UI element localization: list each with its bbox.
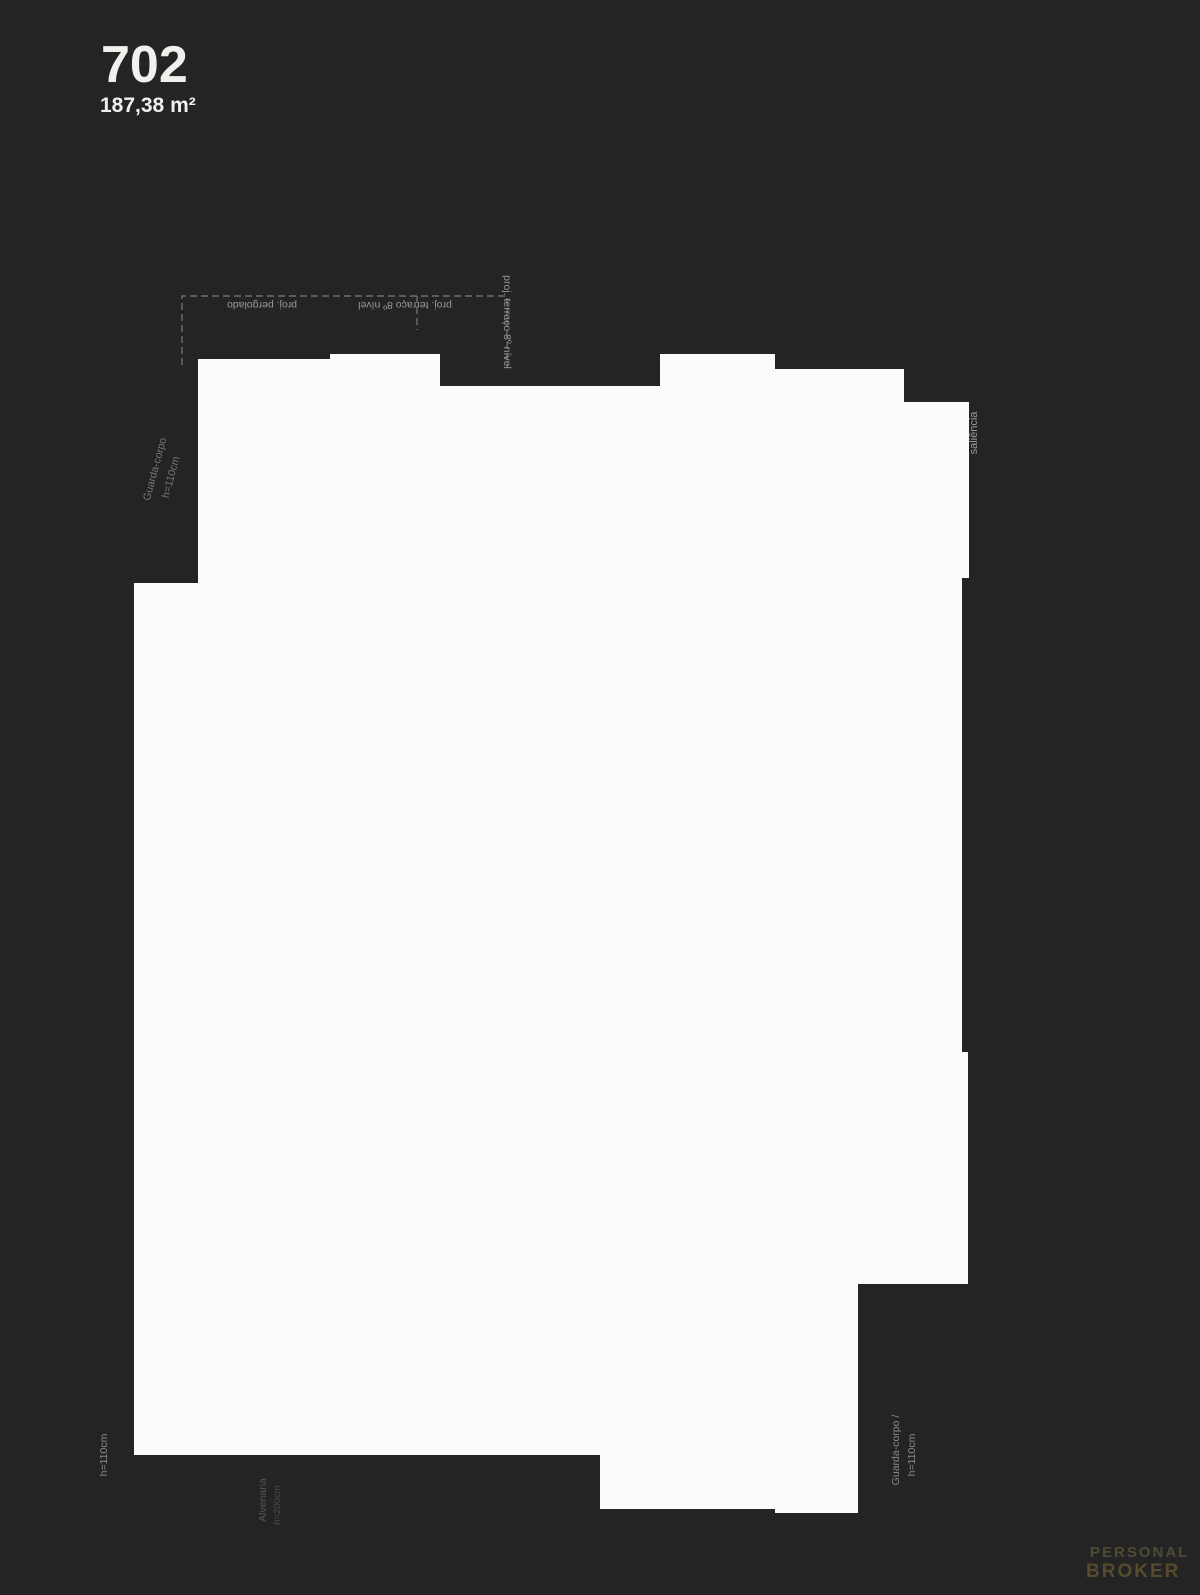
- svg-text:PERSONAL: PERSONAL: [1090, 1544, 1189, 1561]
- svg-text:Alvenaria: Alvenaria: [257, 1478, 269, 1522]
- svg-text:h=200cm: h=200cm: [272, 1485, 283, 1524]
- svg-text:187,38 m²: 187,38 m²: [100, 94, 196, 117]
- svg-text:Guarda-corpo /: Guarda-corpo /: [890, 1415, 902, 1486]
- svg-text:proj. terraço 8º nível: proj. terraço 8º nível: [358, 299, 452, 311]
- svg-text:BROKER: BROKER: [1086, 1561, 1180, 1582]
- svg-text:h=110cm: h=110cm: [906, 1433, 918, 1476]
- svg-text:proj. terraço 8º nível: proj. terraço 8º nível: [501, 275, 513, 369]
- svg-text:h=110cm: h=110cm: [98, 1433, 110, 1476]
- svg-text:proj. pergolado: proj. pergolado: [227, 299, 297, 311]
- svg-text:saliência: saliência: [968, 411, 980, 455]
- svg-text:702: 702: [101, 36, 188, 94]
